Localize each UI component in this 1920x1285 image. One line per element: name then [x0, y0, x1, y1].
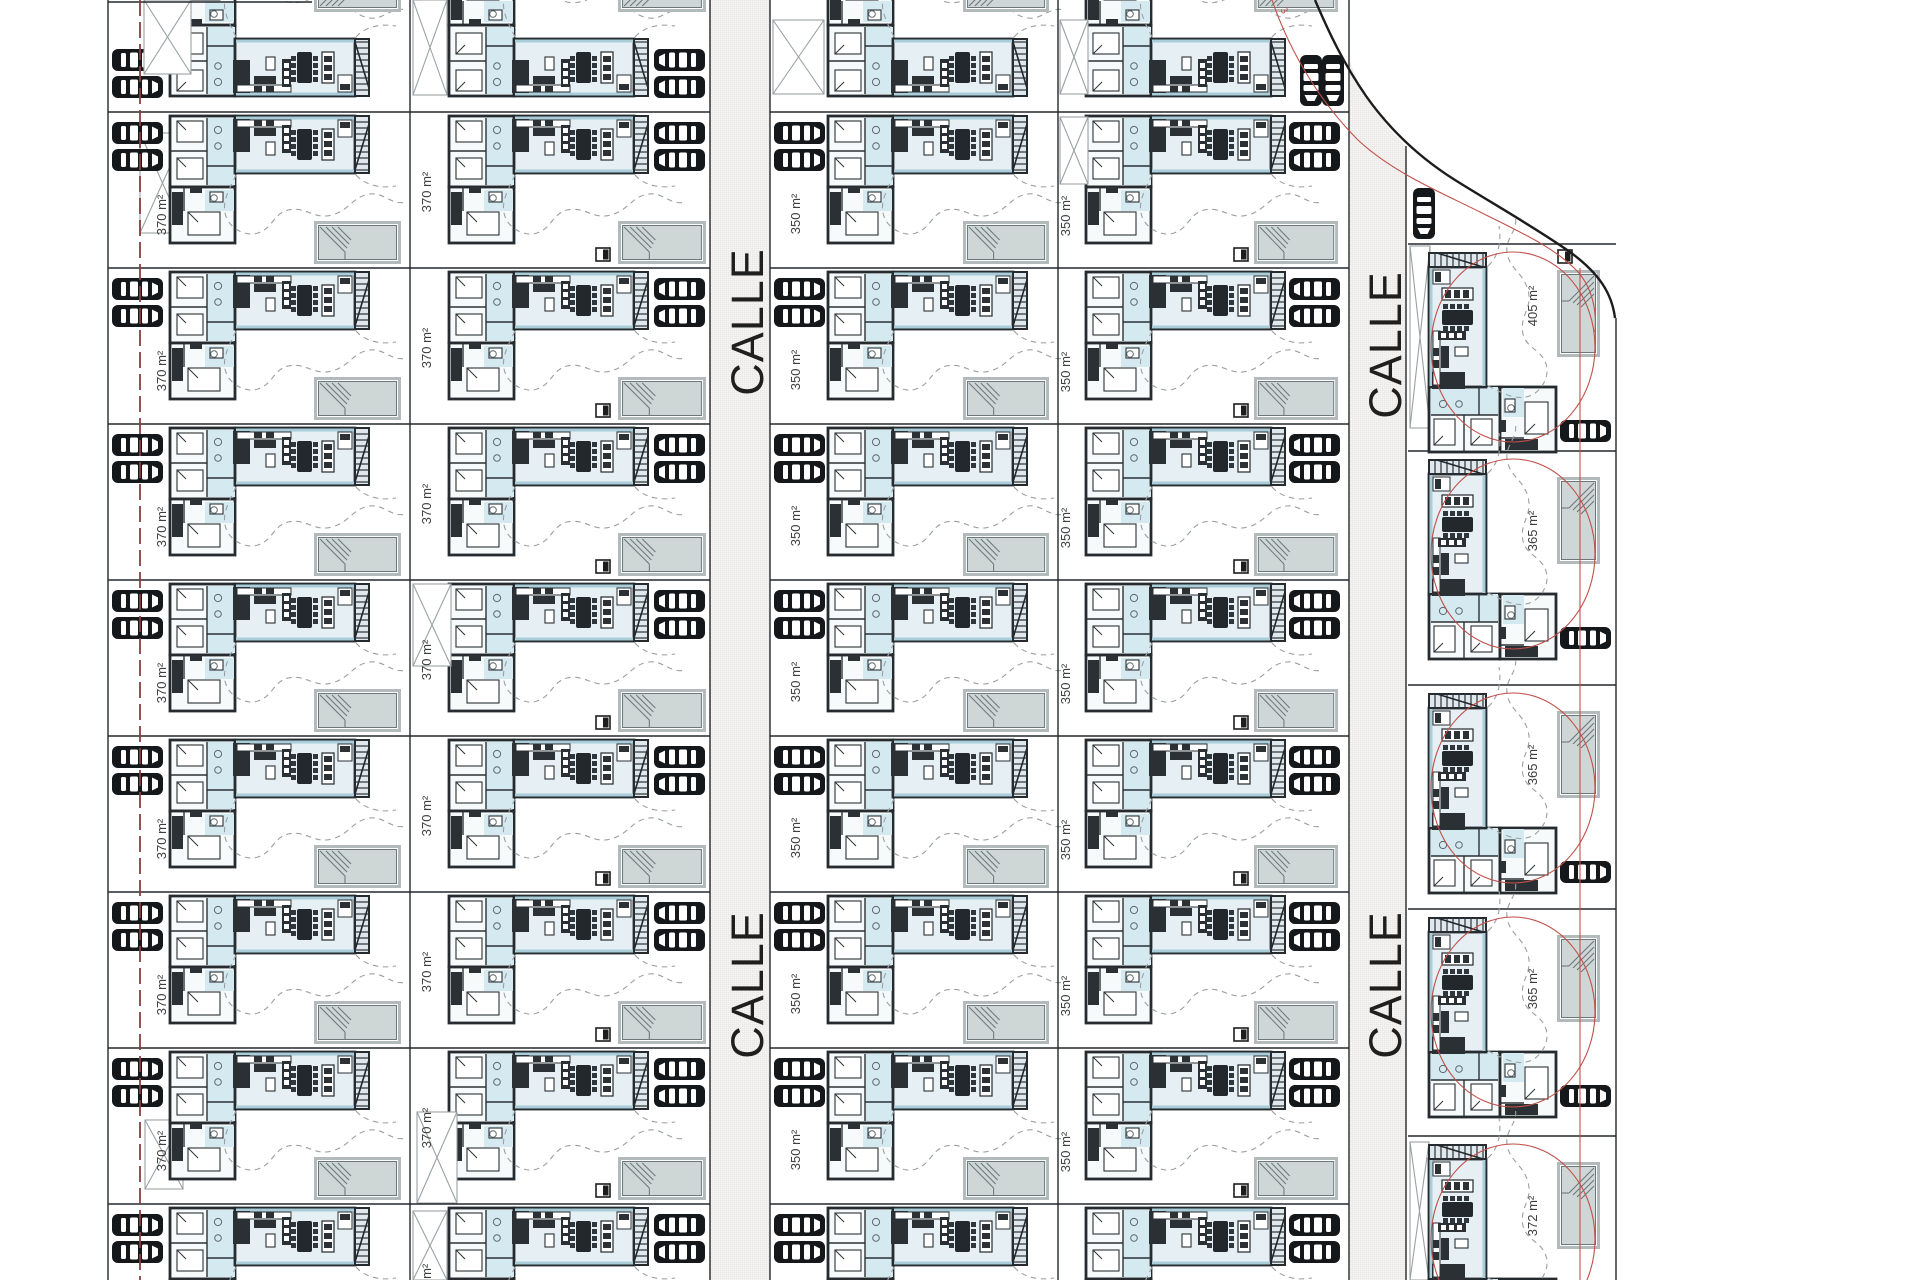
svg-text:370 m²: 370 m² [419, 1263, 434, 1280]
svg-text:372 m²: 372 m² [1525, 1195, 1540, 1236]
svg-text:350 m²: 350 m² [1058, 975, 1073, 1016]
svg-text:350 m²: 350 m² [788, 973, 803, 1014]
svg-text:350 m²: 350 m² [788, 349, 803, 390]
svg-text:370 m²: 370 m² [154, 350, 169, 391]
svg-text:365 m²: 365 m² [1525, 744, 1540, 785]
svg-text:350 m²: 350 m² [1058, 351, 1073, 392]
svg-text:350 m²: 350 m² [1058, 195, 1073, 236]
svg-text:350 m²: 350 m² [788, 193, 803, 234]
svg-text:365 m²: 365 m² [1525, 510, 1540, 551]
svg-text:370 m²: 370 m² [154, 1130, 169, 1171]
svg-text:350 m²: 350 m² [1058, 819, 1073, 860]
svg-text:370 m²: 370 m² [154, 974, 169, 1015]
svg-text:370 m²: 370 m² [419, 1107, 434, 1148]
svg-text:370 m²: 370 m² [419, 639, 434, 680]
svg-text:405 m²: 405 m² [1525, 285, 1540, 326]
svg-text:370 m²: 370 m² [154, 506, 169, 547]
svg-text:CALLE: CALLE [722, 248, 773, 396]
svg-text:370 m²: 370 m² [419, 483, 434, 524]
svg-text:350 m²: 350 m² [788, 817, 803, 858]
svg-text:350 m²: 350 m² [788, 1129, 803, 1170]
svg-text:370 m²: 370 m² [154, 818, 169, 859]
svg-text:370 m²: 370 m² [154, 194, 169, 235]
svg-text:365 m²: 365 m² [1525, 968, 1540, 1009]
svg-text:370 m²: 370 m² [419, 171, 434, 212]
svg-text:350 m²: 350 m² [1058, 507, 1073, 548]
svg-text:CALLE: CALLE [1360, 271, 1411, 419]
svg-text:350 m²: 350 m² [1058, 1131, 1073, 1172]
svg-text:CALLE: CALLE [1360, 911, 1411, 1059]
svg-text:350 m²: 350 m² [788, 661, 803, 702]
svg-text:370 m²: 370 m² [419, 327, 434, 368]
svg-text:350 m²: 350 m² [1058, 663, 1073, 704]
svg-text:350 m²: 350 m² [788, 505, 803, 546]
svg-text:370 m²: 370 m² [419, 795, 434, 836]
svg-text:370 m²: 370 m² [154, 662, 169, 703]
svg-text:CALLE: CALLE [722, 911, 773, 1059]
svg-text:370 m²: 370 m² [419, 951, 434, 992]
